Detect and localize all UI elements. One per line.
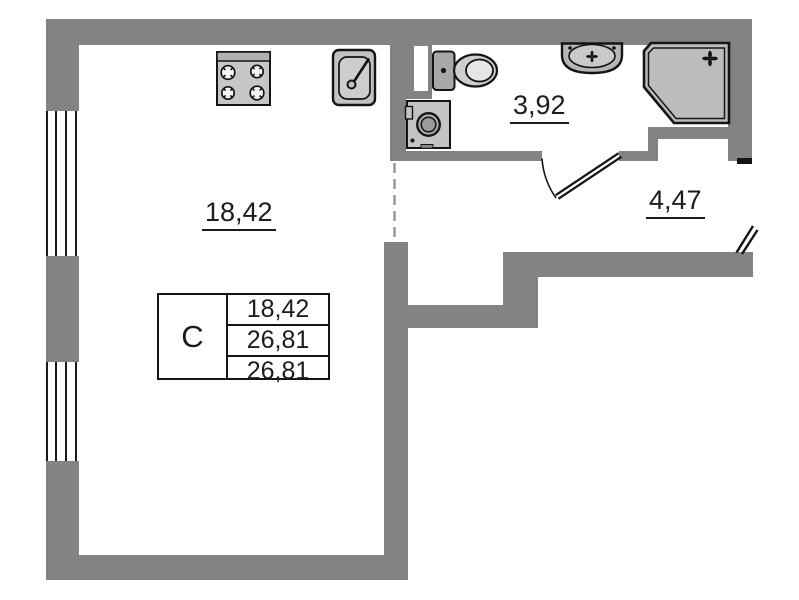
area-label-living: 18,42 [202, 199, 276, 231]
tank-button-icon [441, 68, 446, 73]
burner-icon [221, 66, 235, 80]
stamp-row-total-area-2: 26,81 [228, 357, 328, 386]
apartment-type-cell: С [159, 295, 228, 378]
stamp-row-total-area: 26,81 [228, 326, 328, 357]
stove [217, 52, 270, 105]
stamp-row-living-area: 18,42 [228, 295, 328, 326]
bathroom-door-swing [542, 153, 621, 199]
washbasin [562, 44, 622, 74]
washing-machine [406, 101, 451, 148]
shower-cabin [644, 43, 729, 123]
area-label-hallway: 4,47 [646, 187, 705, 219]
detergent-drawer-icon [406, 107, 413, 120]
burner-icon [222, 87, 234, 99]
toilet [433, 52, 497, 91]
fixtures-overlay [0, 0, 799, 600]
floor-plan: 18,42 3,92 4,47 С 18,42 26,81 26,81 [0, 0, 799, 600]
burner-icon [250, 86, 264, 100]
apartment-stamp-table: С 18,42 26,81 26,81 [157, 293, 330, 380]
kitchen-sink [333, 50, 375, 105]
stamp-value-rows: 18,42 26,81 26,81 [228, 295, 328, 378]
burner-icon [251, 65, 263, 77]
area-label-bathroom: 3,92 [510, 92, 569, 124]
entrance-door [737, 226, 758, 254]
